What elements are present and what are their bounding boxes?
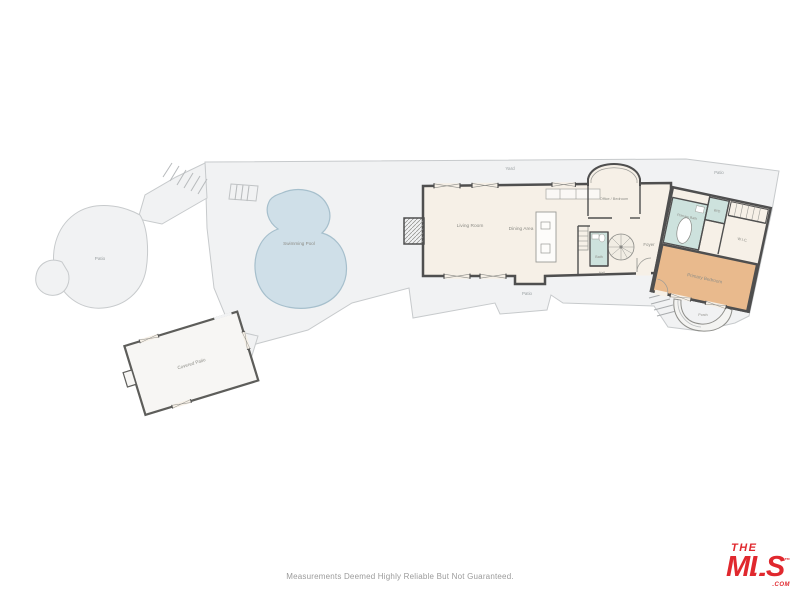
vanity-icon	[695, 206, 704, 214]
bath-sink-icon	[592, 234, 599, 239]
office-bedroom-label: Office / Bedroom	[600, 197, 628, 201]
living-room-label: Living Room	[457, 223, 484, 229]
spiral-staircase	[608, 234, 634, 260]
hall-label: Hall	[599, 271, 605, 275]
trademark-symbol: ™	[784, 558, 789, 564]
dining-area-label: Dining Area	[509, 226, 534, 232]
patio-left-small-area	[36, 260, 69, 295]
foyer-label: Foyer	[643, 242, 655, 247]
kitchen-counter	[546, 189, 600, 199]
bath-label: Bath	[595, 255, 602, 259]
fireplace	[404, 218, 424, 244]
porch-label: Porch	[698, 313, 707, 317]
primary-suite-wing: Primary Bath W/D W.I.C. Primary Bedroom	[650, 187, 770, 314]
kitchen-island	[536, 212, 556, 262]
patio-left-label: Patio	[95, 256, 106, 261]
patio-top-right-label: Patio	[714, 170, 724, 175]
mls-logo-mls: MLS™	[726, 553, 790, 582]
swimming-pool-label: Swimming Pool	[283, 241, 315, 246]
outbuilding: Covered Patio	[115, 309, 260, 419]
yard-label: Yard	[505, 166, 515, 171]
floor-plan-drawing: Swimming Pool Covered Patio Porch	[0, 0, 800, 600]
pantry-shelves	[578, 226, 588, 250]
mls-logo: THE MLS™ .COM	[726, 543, 790, 588]
toilet-icon	[599, 234, 605, 242]
floor-plan-page: Swimming Pool Covered Patio Porch	[0, 0, 800, 600]
patio-bottom-label: Patio	[522, 291, 533, 296]
measurements-disclaimer: Measurements Deemed Highly Reliable But …	[0, 572, 800, 581]
